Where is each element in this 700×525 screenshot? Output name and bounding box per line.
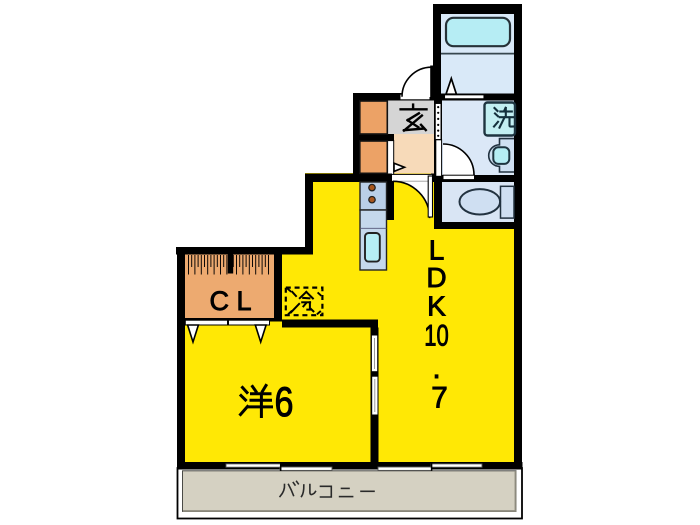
svg-text:L: L xyxy=(429,235,445,266)
svg-text:D: D xyxy=(426,262,446,293)
svg-text:6: 6 xyxy=(275,378,294,425)
svg-text:C L: C L xyxy=(209,286,251,316)
svg-text:.: . xyxy=(432,352,440,385)
svg-text:10: 10 xyxy=(424,320,449,353)
svg-text:K: K xyxy=(427,291,446,322)
svg-text:7: 7 xyxy=(431,382,448,415)
